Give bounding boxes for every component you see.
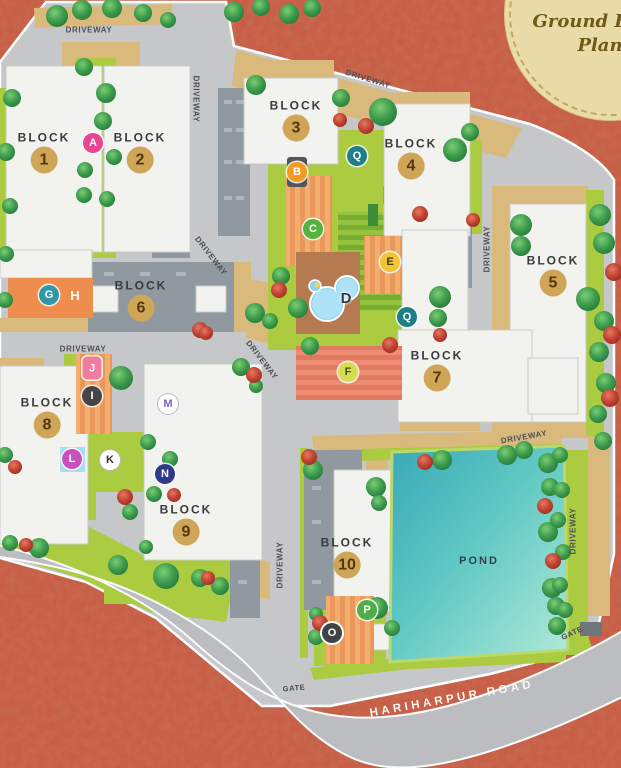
plan-title-line1: Ground Floor [512, 10, 621, 34]
block-10-number: 10 [333, 552, 360, 579]
block-3-name: BLOCK [270, 99, 323, 113]
plan-title-line2: Plan [512, 34, 621, 58]
marker-d: D [336, 288, 356, 308]
marker-n: N [155, 464, 175, 484]
block-10-label: BLOCK10 [321, 536, 374, 579]
marker-e: E [380, 252, 400, 272]
block-3-label: BLOCK3 [270, 99, 323, 142]
driveway-label-west: DRIVEWAY [60, 345, 107, 354]
marker-g: G [39, 285, 59, 305]
block-7-label: BLOCK7 [411, 349, 464, 392]
block-2-number: 2 [126, 147, 153, 174]
driveway-label-north-vertical: DRIVEWAY [192, 76, 201, 123]
block-7-number: 7 [423, 365, 450, 392]
block-6-label: BLOCK6 [115, 279, 168, 322]
marker-j: J [83, 357, 102, 380]
block-6-name: BLOCK [115, 279, 168, 293]
block-4-number: 4 [397, 153, 424, 180]
marker-l: L [62, 449, 82, 469]
block-4-name: BLOCK [385, 137, 438, 151]
marker-q-2: Q [397, 307, 417, 327]
block-2-name: BLOCK [114, 131, 167, 145]
pond-label: POND [459, 555, 499, 567]
block-9-name: BLOCK [160, 503, 213, 517]
block-8-label: BLOCK8 [21, 396, 74, 439]
block-10-name: BLOCK [321, 536, 374, 550]
driveway-label-top-left: DRIVEWAY [66, 26, 113, 35]
block-5-label: BLOCK5 [527, 254, 580, 297]
block-8-number: 8 [33, 412, 60, 439]
plan-title: Ground Floor Plan [512, 10, 621, 59]
block-3-number: 3 [282, 115, 309, 142]
block-4-label: BLOCK4 [385, 137, 438, 180]
marker-b: B [287, 162, 307, 182]
marker-p: P [357, 600, 377, 620]
block-7-name: BLOCK [411, 349, 464, 363]
marker-h: H [65, 285, 85, 305]
block-5-name: BLOCK [527, 254, 580, 268]
marker-o: O [322, 623, 342, 643]
site-plan: Ground Floor Plan DRIVEWAY DRIVEWAY DRIV… [0, 0, 621, 768]
block-8-name: BLOCK [21, 396, 74, 410]
pond-water [390, 446, 568, 662]
marker-f: F [338, 362, 358, 382]
block-5-number: 5 [539, 270, 566, 297]
block-9-label: BLOCK9 [160, 503, 213, 546]
block-1-number: 1 [30, 147, 57, 174]
marker-k: K [100, 450, 120, 470]
driveway-label-south-vertical: DRIVEWAY [276, 542, 285, 589]
block-6-number: 6 [127, 295, 154, 322]
block-2-label: BLOCK2 [114, 131, 167, 174]
marker-q-1: Q [347, 146, 367, 166]
block-1-name: BLOCK [18, 131, 71, 145]
marker-a: A [83, 133, 103, 153]
driveway-label-pond-east: DRIVEWAY [569, 508, 578, 555]
driveway-label-east-vertical: DRIVEWAY [483, 226, 492, 273]
gate-structure [580, 622, 602, 636]
block-1-label: BLOCK1 [18, 131, 71, 174]
marker-i: I [82, 386, 102, 406]
marker-c: C [303, 219, 323, 239]
block-9-number: 9 [172, 519, 199, 546]
marker-m: M [158, 394, 178, 414]
